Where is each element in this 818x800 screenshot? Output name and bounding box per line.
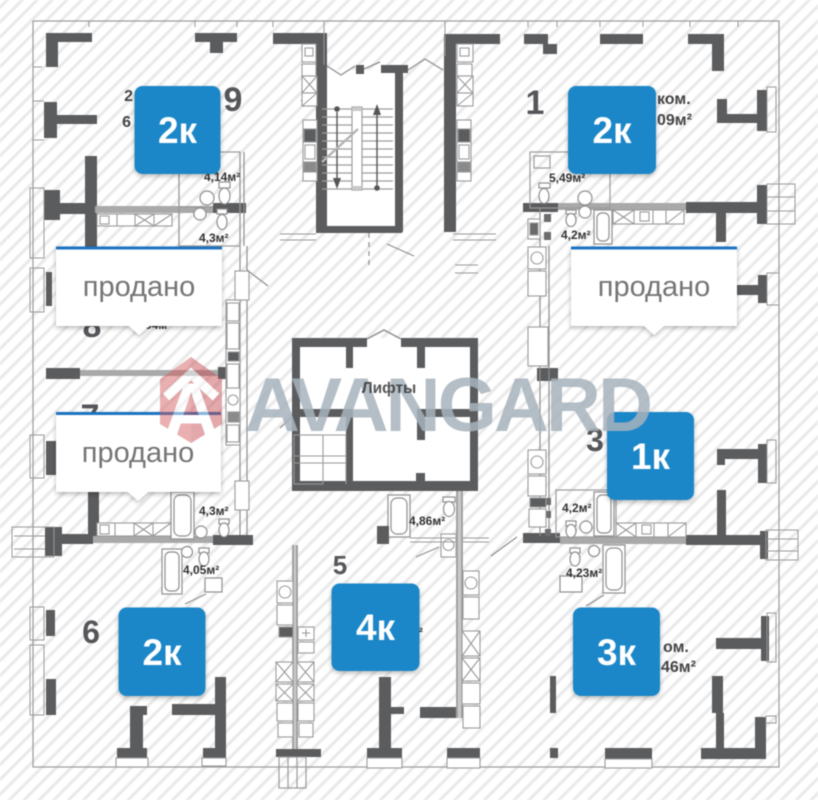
svg-text:4,05м²: 4,05м² (183, 563, 219, 577)
svg-text:продано: продано (598, 271, 711, 303)
svg-text:4к: 4к (356, 607, 396, 648)
svg-text:09м²: 09м² (657, 112, 692, 129)
svg-text:4,86м²: 4,86м² (409, 514, 445, 528)
svg-text:ом.: ом. (663, 639, 689, 656)
svg-text:9: 9 (224, 81, 243, 119)
svg-text:ком.: ком. (657, 91, 691, 108)
svg-text:2к: 2к (142, 632, 182, 673)
svg-text:A: A (163, 366, 219, 454)
svg-text:4,23м²: 4,23м² (566, 566, 602, 580)
svg-text:Лифты: Лифты (362, 380, 417, 397)
svg-text:2: 2 (124, 88, 133, 105)
svg-text:6: 6 (122, 114, 131, 131)
svg-text:3к: 3к (597, 632, 637, 673)
svg-text:4,2м²: 4,2м² (562, 501, 592, 515)
svg-text:4,3м²: 4,3м² (199, 504, 229, 518)
svg-text:AVANGARD: AVANGARD (245, 363, 653, 448)
svg-text:6: 6 (82, 614, 100, 650)
svg-text:продано: продано (83, 271, 196, 303)
svg-text:1: 1 (526, 84, 545, 122)
svg-text:2к: 2к (158, 110, 198, 151)
svg-text:4,3м²: 4,3м² (199, 231, 229, 245)
svg-text:46м²: 46м² (661, 659, 696, 676)
svg-text:2к: 2к (592, 110, 632, 151)
svg-text:4,2м²: 4,2м² (561, 228, 591, 242)
svg-text:5: 5 (333, 550, 347, 580)
